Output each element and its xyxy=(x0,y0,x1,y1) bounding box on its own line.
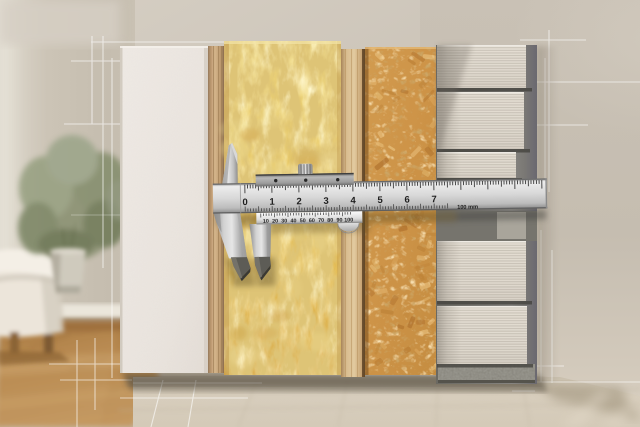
svg-text:100: 100 xyxy=(344,217,353,223)
svg-text:2: 2 xyxy=(296,196,301,207)
svg-text:20: 20 xyxy=(272,219,278,225)
svg-text:10: 10 xyxy=(263,219,269,225)
svg-text:0: 0 xyxy=(242,197,247,208)
svg-text:70: 70 xyxy=(318,218,324,224)
svg-text:4: 4 xyxy=(350,195,356,206)
svg-text:90: 90 xyxy=(336,218,342,224)
svg-text:60: 60 xyxy=(309,218,315,224)
svg-text:5: 5 xyxy=(377,195,383,206)
svg-text:6: 6 xyxy=(404,195,409,206)
svg-text:7: 7 xyxy=(431,194,436,205)
svg-text:3: 3 xyxy=(323,196,328,207)
svg-text:100 mm: 100 mm xyxy=(457,204,478,210)
svg-text:30: 30 xyxy=(281,218,287,224)
svg-text:80: 80 xyxy=(327,218,333,224)
svg-text:40: 40 xyxy=(290,218,296,224)
svg-text:50: 50 xyxy=(300,218,306,224)
svg-text:1: 1 xyxy=(269,197,275,208)
